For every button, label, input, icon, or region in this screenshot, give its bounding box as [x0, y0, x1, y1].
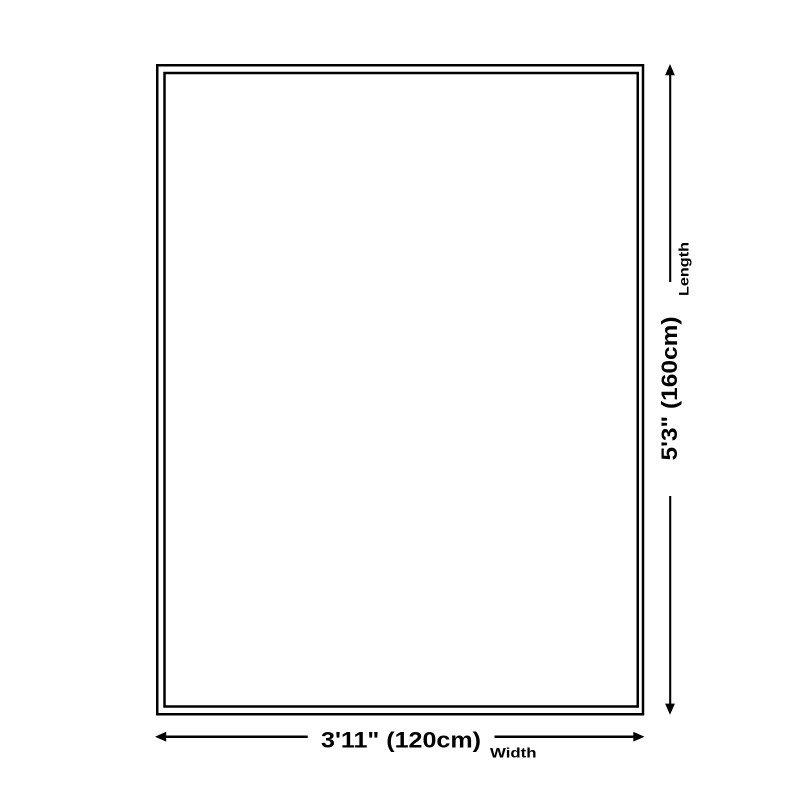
- svg-text:Length: Length: [676, 242, 692, 296]
- svg-text:3'11" (120cm): 3'11" (120cm): [321, 728, 481, 753]
- svg-text:Width: Width: [490, 745, 537, 761]
- svg-text:5'3" (160cm): 5'3" (160cm): [657, 317, 682, 461]
